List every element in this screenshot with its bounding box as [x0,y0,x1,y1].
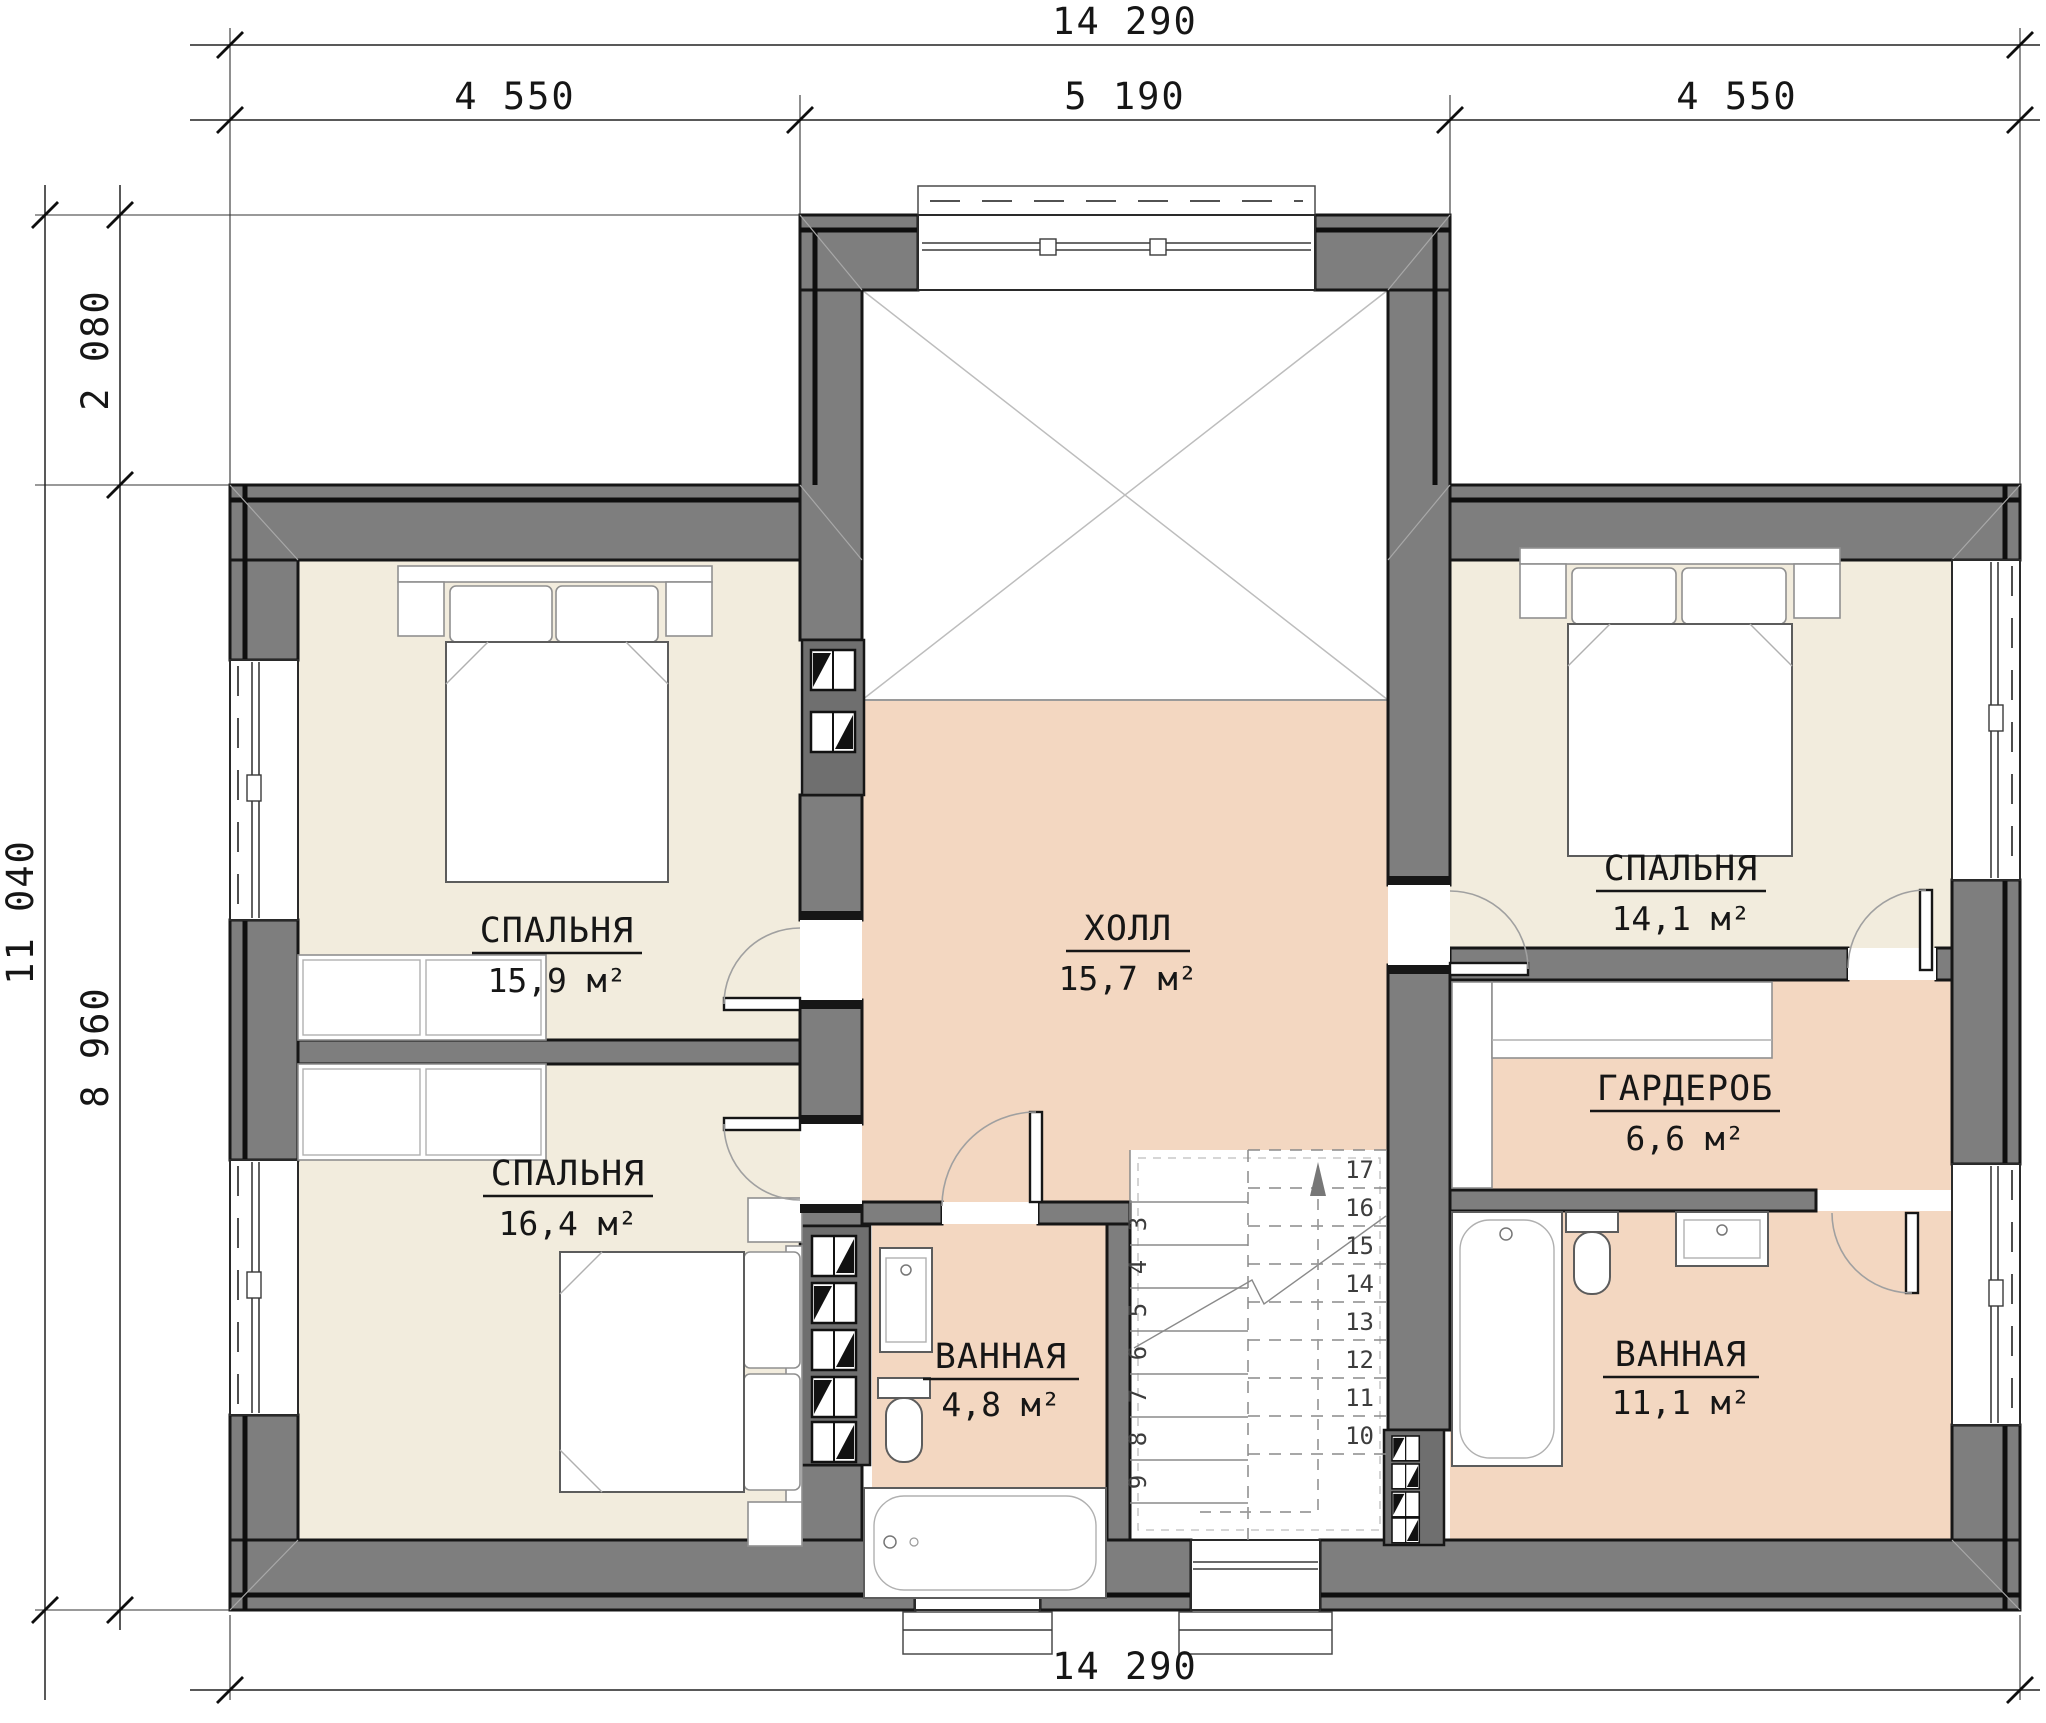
floor-plan-page: 3 4 5 6 7 8 9 10 11 12 13 14 15 16 17 [0,0,2046,1723]
dim-left-segment-1: 2 080 [74,289,117,410]
stair-step-number: 6 [1124,1346,1152,1360]
window-top-void [918,186,1315,290]
window-right-bathroom [1952,1164,2020,1425]
wall-right-pier [1952,880,2020,1164]
wall-hall-left-lower [800,1465,862,1545]
wall-hall-left-mid2 [800,1000,862,1124]
room-area-wardrobe: 6,6 м² [1625,1119,1744,1158]
toilet-large-bathroom [1566,1212,1618,1294]
wall-right-3 [1952,1425,2020,1540]
wall-top-center-right-pier [1315,215,1450,290]
dim-top-segment-3: 4 550 [1676,75,1797,118]
stair-step-number: 17 [1345,1156,1374,1184]
partition-left-bedrooms [298,1040,800,1064]
window-left-top [230,660,298,920]
wall-hall-left-upper [800,290,862,640]
wall-left-1 [230,560,298,660]
wall-left-3 [230,1415,298,1540]
vent-stack-bathroom-small [800,1226,870,1465]
room-name-bedroom-bottom-left: СПАЛЬНЯ [491,1154,646,1194]
vent-icon [812,1283,856,1323]
dim-top-segment-2: 5 190 [1064,75,1185,118]
vent-icon [812,1330,856,1370]
vent-icon [1392,1492,1419,1517]
room-area-bathroom-large: 11,1 м² [1611,1383,1750,1422]
stair-step-number: 11 [1345,1384,1374,1412]
stair-step-number: 3 [1124,1217,1152,1231]
wall-top-center-left-pier [800,215,918,290]
floor-plan-drawing: 3 4 5 6 7 8 9 10 11 12 13 14 15 16 17 [0,0,2046,1723]
room-area-bathroom-small: 4,8 м² [941,1385,1060,1424]
partition-wardrobe-bath [1450,1190,1816,1211]
window-bottom-stair [1179,1540,1332,1654]
room-name-bedroom-right: СПАЛЬНЯ [1604,849,1759,889]
bathtub-small-bathroom [864,1488,1106,1598]
vent-stack-hall-left [802,640,864,795]
dim-top-total: 14 290 [1052,0,1198,43]
room-area-bedroom-right: 14,1 м² [1611,899,1750,938]
vent-stack-stair-right [1384,1430,1444,1545]
toilet-small-bathroom [878,1378,930,1462]
stair-step-number: 15 [1345,1232,1374,1260]
dim-top-segment-1: 4 550 [454,75,575,118]
window-left-bottom [230,1160,298,1415]
wall-top-left-wing [230,485,800,560]
vent-icon [1392,1464,1419,1489]
wall-left-pier [230,920,298,1160]
sink-large-bathroom [1676,1212,1768,1266]
sink-small-bathroom [880,1248,932,1352]
stair-step-number: 13 [1345,1308,1374,1336]
room-area-bedroom-top-left: 15,9 м² [487,961,626,1000]
room-area-bedroom-bottom-left: 16,4 м² [498,1204,637,1243]
vent-icon [812,1236,856,1276]
wardrobe-bottom-left-bedroom [298,1064,546,1160]
stair-step-number: 14 [1345,1270,1374,1298]
bathtub-large-bathroom [1452,1212,1562,1466]
partition-bath-small-top-left [862,1202,942,1224]
wall-hall-right-upper [1388,290,1450,885]
room-name-bathroom-large: ВАННАЯ [1615,1335,1747,1375]
stair-step-number: 10 [1345,1422,1374,1450]
dim-left-total: 11 040 [0,839,42,985]
vent-icon [812,1377,856,1417]
wall-hall-left-mid1 [800,795,862,920]
stair-step-number: 8 [1124,1432,1152,1446]
vent-icon [811,712,855,752]
stair-step-number: 5 [1124,1303,1152,1317]
room-name-bathroom-small: ВАННАЯ [935,1337,1067,1377]
stair-step-number: 16 [1345,1194,1374,1222]
wall-hall-right-lower [1388,965,1450,1430]
vent-icon [1392,1436,1419,1461]
window-right-bedroom [1952,560,2020,880]
vent-icon [1392,1518,1419,1543]
partition-bath-small-top-right [1038,1202,1130,1224]
room-name-bedroom-top-left: СПАЛЬНЯ [480,911,635,951]
stair-step-number: 4 [1124,1260,1152,1274]
room-name-wardrobe: ГАРДЕРОБ [1597,1069,1774,1109]
partition-bedroom-wardrobe-end [1936,948,1952,980]
vent-icon [812,1422,856,1462]
stair-step-number: 9 [1124,1475,1152,1489]
stair-step-number: 12 [1345,1346,1374,1374]
room-name-hall: ХОЛЛ [1084,909,1172,949]
room-area-hall: 15,7 м² [1058,959,1197,998]
wall-bottom-3 [1320,1540,2020,1610]
vent-icon [811,650,855,690]
dim-left-segment-2: 8 960 [74,986,117,1107]
wall-bottom-1 [230,1540,915,1610]
stair-step-number: 7 [1124,1389,1152,1403]
dim-bottom-total: 14 290 [1052,1645,1198,1688]
